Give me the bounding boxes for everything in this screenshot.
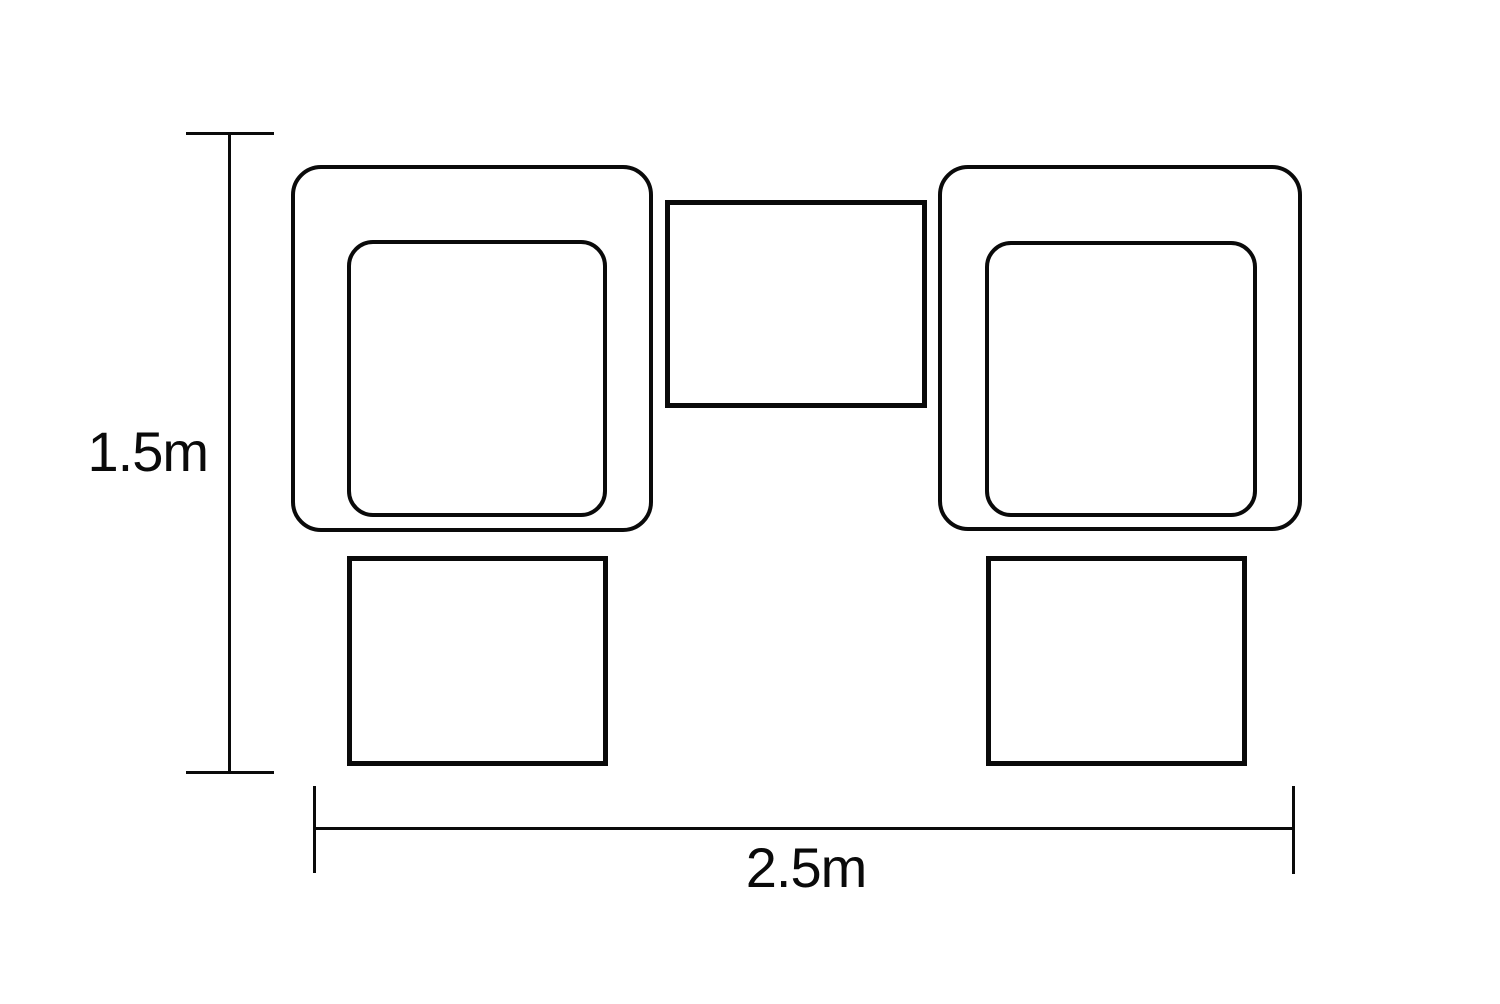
horizontal-dimension-right-tick	[1292, 786, 1295, 874]
vertical-dimension-line	[228, 132, 231, 773]
right-armchair-seat	[985, 241, 1257, 517]
right-footstool	[986, 556, 1247, 766]
width-dimension-label: 2.5m	[706, 840, 906, 896]
height-dimension-label: 1.5m	[58, 424, 208, 480]
left-armchair-seat	[347, 240, 607, 517]
vertical-dimension-bottom-tick	[186, 771, 274, 774]
left-footstool	[347, 556, 608, 766]
horizontal-dimension-line	[313, 827, 1295, 830]
furniture-dimension-diagram: 1.5m 2.5m	[0, 0, 1500, 1004]
center-table	[665, 200, 927, 408]
